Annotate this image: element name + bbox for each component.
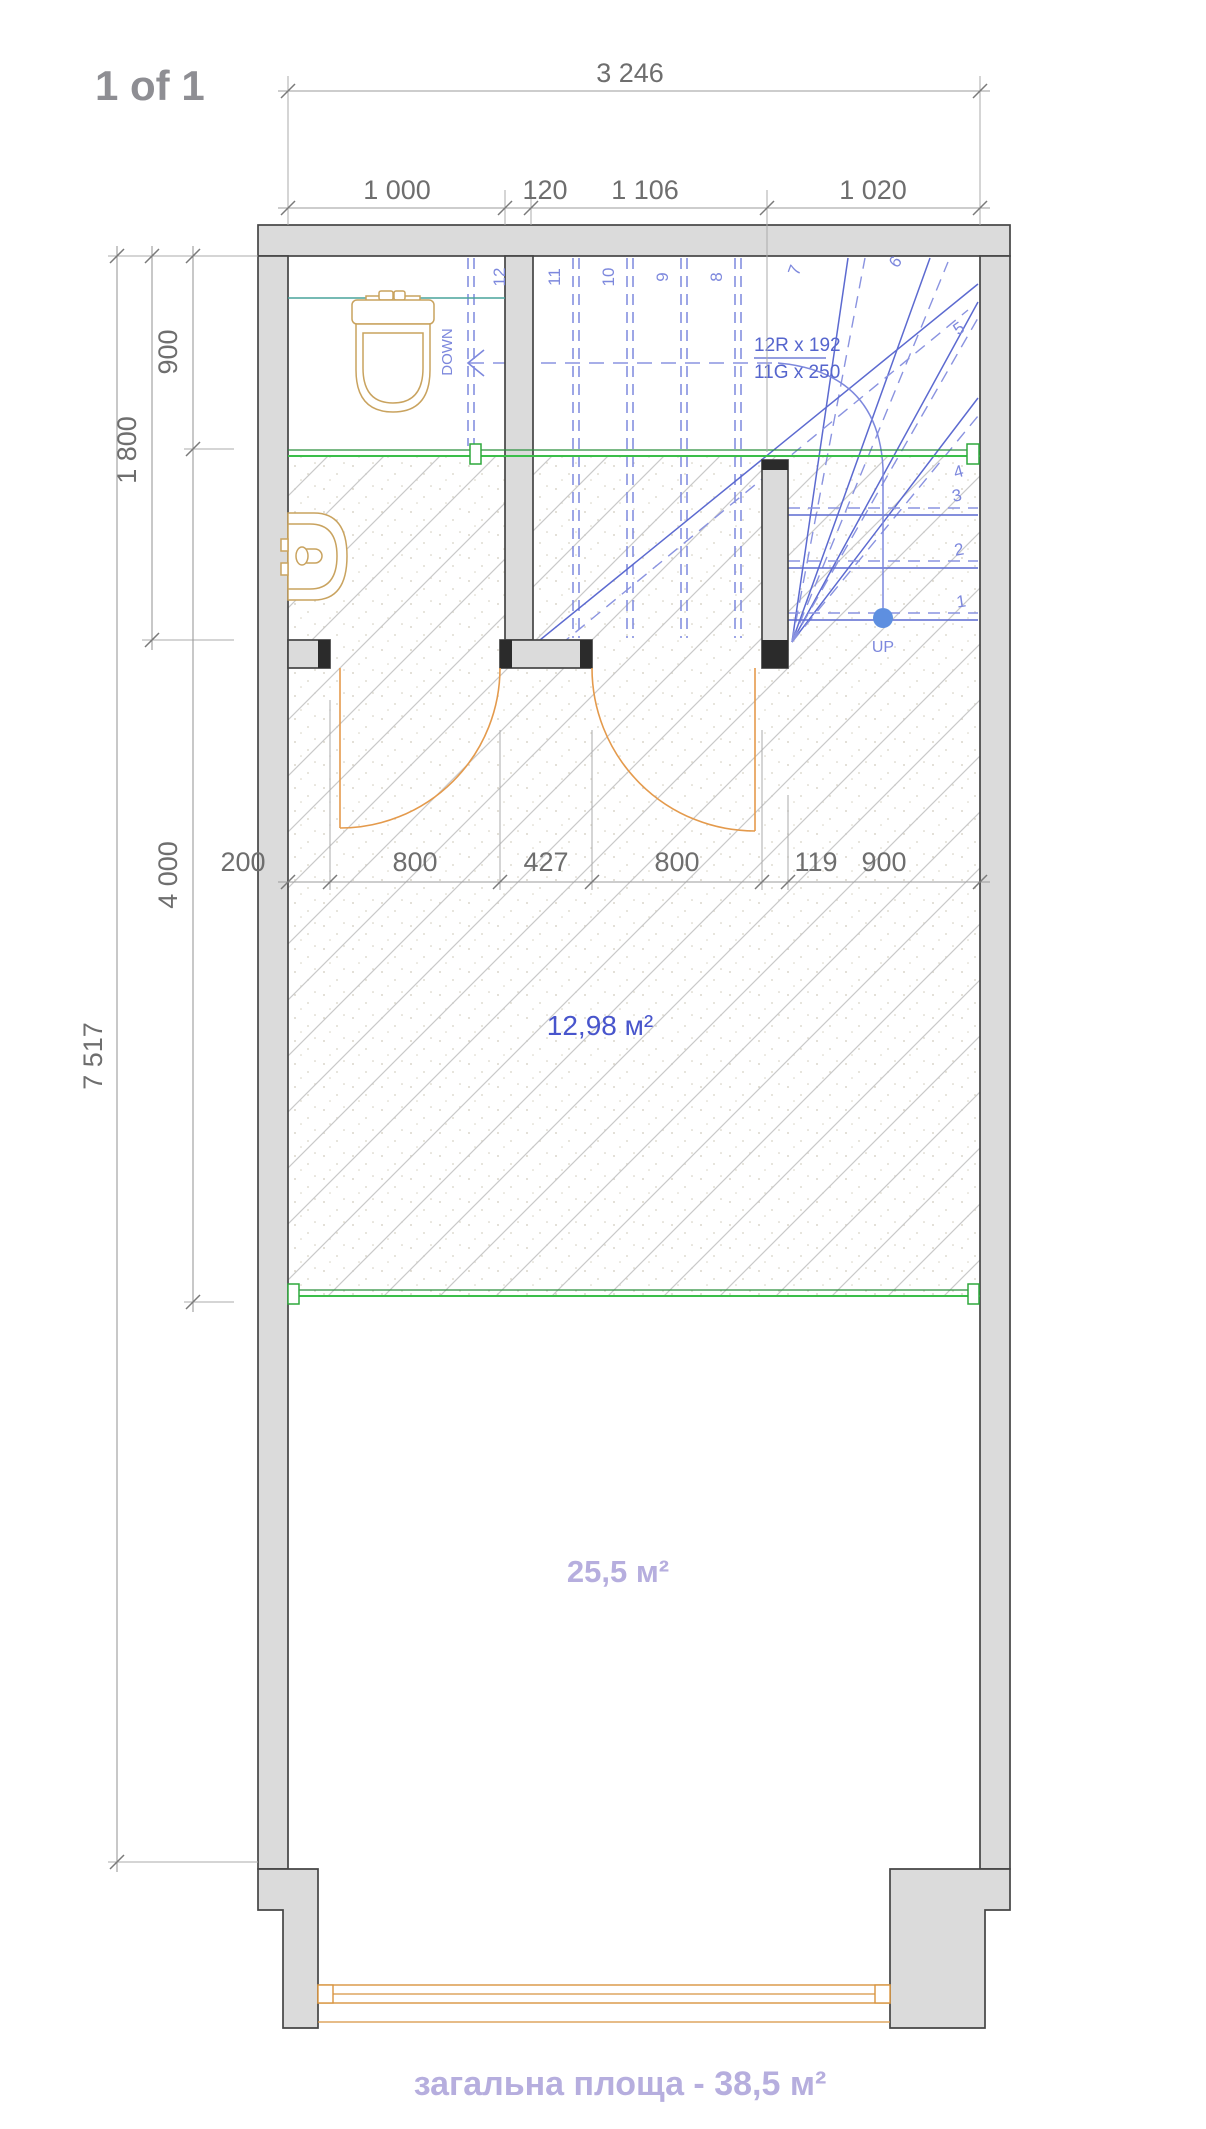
bottom-right-pier (890, 1869, 1010, 2028)
stair-start-dot (873, 608, 893, 628)
wc-partition-wall (505, 256, 533, 640)
dim-left-segment: 4 000 (153, 841, 183, 909)
dim-mid-segment: 200 (220, 847, 265, 877)
stair-up-label: UP (872, 639, 894, 656)
toilet (352, 291, 434, 412)
dim-top-segment: 120 (522, 175, 567, 205)
outer-wall-top (258, 225, 1010, 256)
dim-top-total: 3 246 (596, 58, 664, 88)
bottom-left-pier (258, 1869, 318, 2028)
dim-top-segment: 1 000 (363, 175, 431, 205)
stair-number: 10 (599, 268, 618, 287)
stair-number: 11 (545, 268, 564, 286)
outer-wall-left (258, 256, 288, 1869)
dim-mid-segment: 119 (794, 847, 837, 877)
floor-plan-viewer: 12 11 10 9 8 7 6 5 4 3 2 1 DOWN UP 12R x… (0, 0, 1206, 2129)
bottom-window (318, 1985, 890, 2022)
floor-plan-drawing: 12 11 10 9 8 7 6 5 4 3 2 1 DOWN UP 12R x… (0, 0, 1206, 2129)
dim-mid-segment: 427 (523, 847, 568, 877)
dim-left-segment: 1 800 (112, 416, 142, 484)
sink (281, 513, 347, 600)
stair-down-label: DOWN (439, 328, 456, 376)
page-indicator: 1 of 1 (95, 62, 205, 109)
stair-number: 7 (784, 262, 805, 277)
dim-left-total: 7 517 (78, 1022, 108, 1090)
wall-stub-middle (500, 640, 592, 668)
stair-number: 5 (950, 318, 969, 339)
stair-number: 12 (490, 268, 509, 287)
stair-number: 8 (707, 272, 726, 281)
dim-top-segment: 1 106 (611, 175, 679, 205)
outer-wall-right (980, 256, 1010, 1869)
total-area-label: загальна площа - 38,5 м² (414, 2065, 827, 2103)
toilet-cistern (352, 300, 434, 324)
dim-left-segment: 900 (153, 329, 183, 374)
dim-top-segment: 1 020 (839, 175, 907, 205)
dim-mid-segment: 800 (654, 847, 699, 877)
area-label-hall: 12,98 м² (547, 1010, 653, 1041)
stair-side-wall (762, 460, 788, 668)
area-label-living: 25,5 м² (567, 1554, 669, 1589)
stair-number: 9 (653, 272, 672, 281)
dim-mid-segment: 900 (861, 847, 906, 877)
dim-mid-segment: 800 (392, 847, 437, 877)
